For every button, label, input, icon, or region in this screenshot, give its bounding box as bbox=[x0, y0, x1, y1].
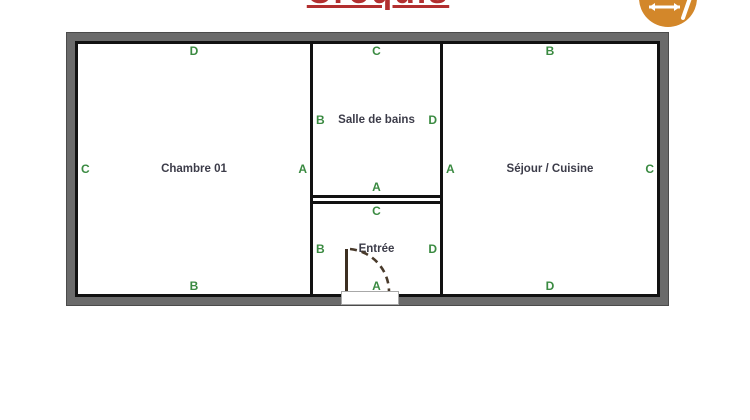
door-threshold bbox=[341, 291, 399, 305]
sketch-tool-icon[interactable] bbox=[639, 0, 697, 27]
page-title: Croquis bbox=[288, 0, 468, 12]
floor-plan: D C A B Chambre 01 C B D A Salle de bain… bbox=[75, 41, 660, 297]
page: Croquis D C A bbox=[0, 0, 750, 420]
door-swing-arc bbox=[78, 44, 657, 294]
ruler-pencil-icon bbox=[639, 0, 697, 27]
floor-plan-canvas: D C A B Chambre 01 C B D A Salle de bain… bbox=[78, 44, 657, 294]
floor-plan-frame: D C A B Chambre 01 C B D A Salle de bain… bbox=[67, 33, 668, 305]
